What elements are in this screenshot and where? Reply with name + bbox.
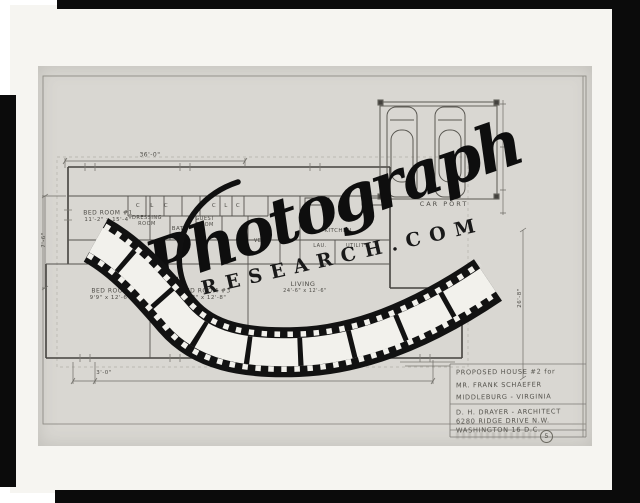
film-strip-icon	[0, 0, 640, 503]
photo-frame-right-edge	[612, 0, 640, 503]
photo-frame-bottom-edge	[55, 490, 640, 503]
photo-frame-top-edge	[57, 0, 640, 9]
photo-frame-left-edge	[0, 95, 16, 487]
archival-photo-of-floor-plan: CLCCLCBED ROOM #111'-2" x 15'-4"DRESSING…	[0, 0, 640, 503]
